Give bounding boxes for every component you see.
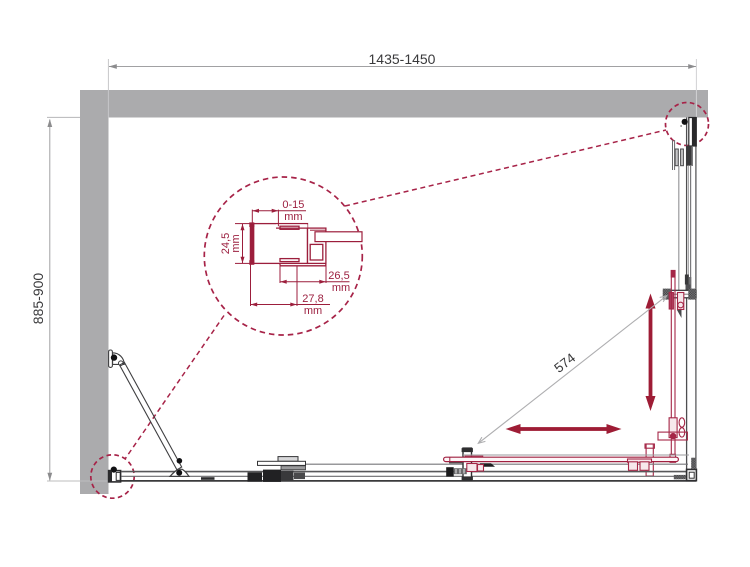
svg-text:0-15: 0-15 <box>282 199 304 211</box>
svg-text:26,5: 26,5 <box>328 270 349 282</box>
svg-text:1435-1450: 1435-1450 <box>369 51 436 67</box>
svg-text:885-900: 885-900 <box>30 273 46 325</box>
svg-text:mm: mm <box>284 211 302 223</box>
svg-text:mm: mm <box>230 234 242 252</box>
svg-text:mm: mm <box>332 282 350 294</box>
svg-text:mm: mm <box>304 305 322 317</box>
svg-text:27,8: 27,8 <box>302 293 323 305</box>
